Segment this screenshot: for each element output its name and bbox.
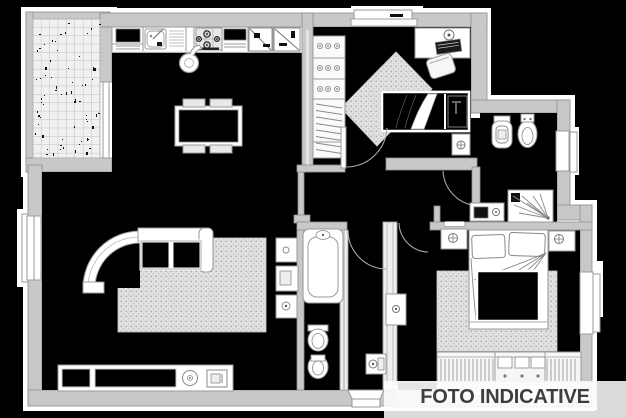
svg-text:FOTO INDICATIVE: FOTO INDICATIVE [420, 386, 590, 408]
